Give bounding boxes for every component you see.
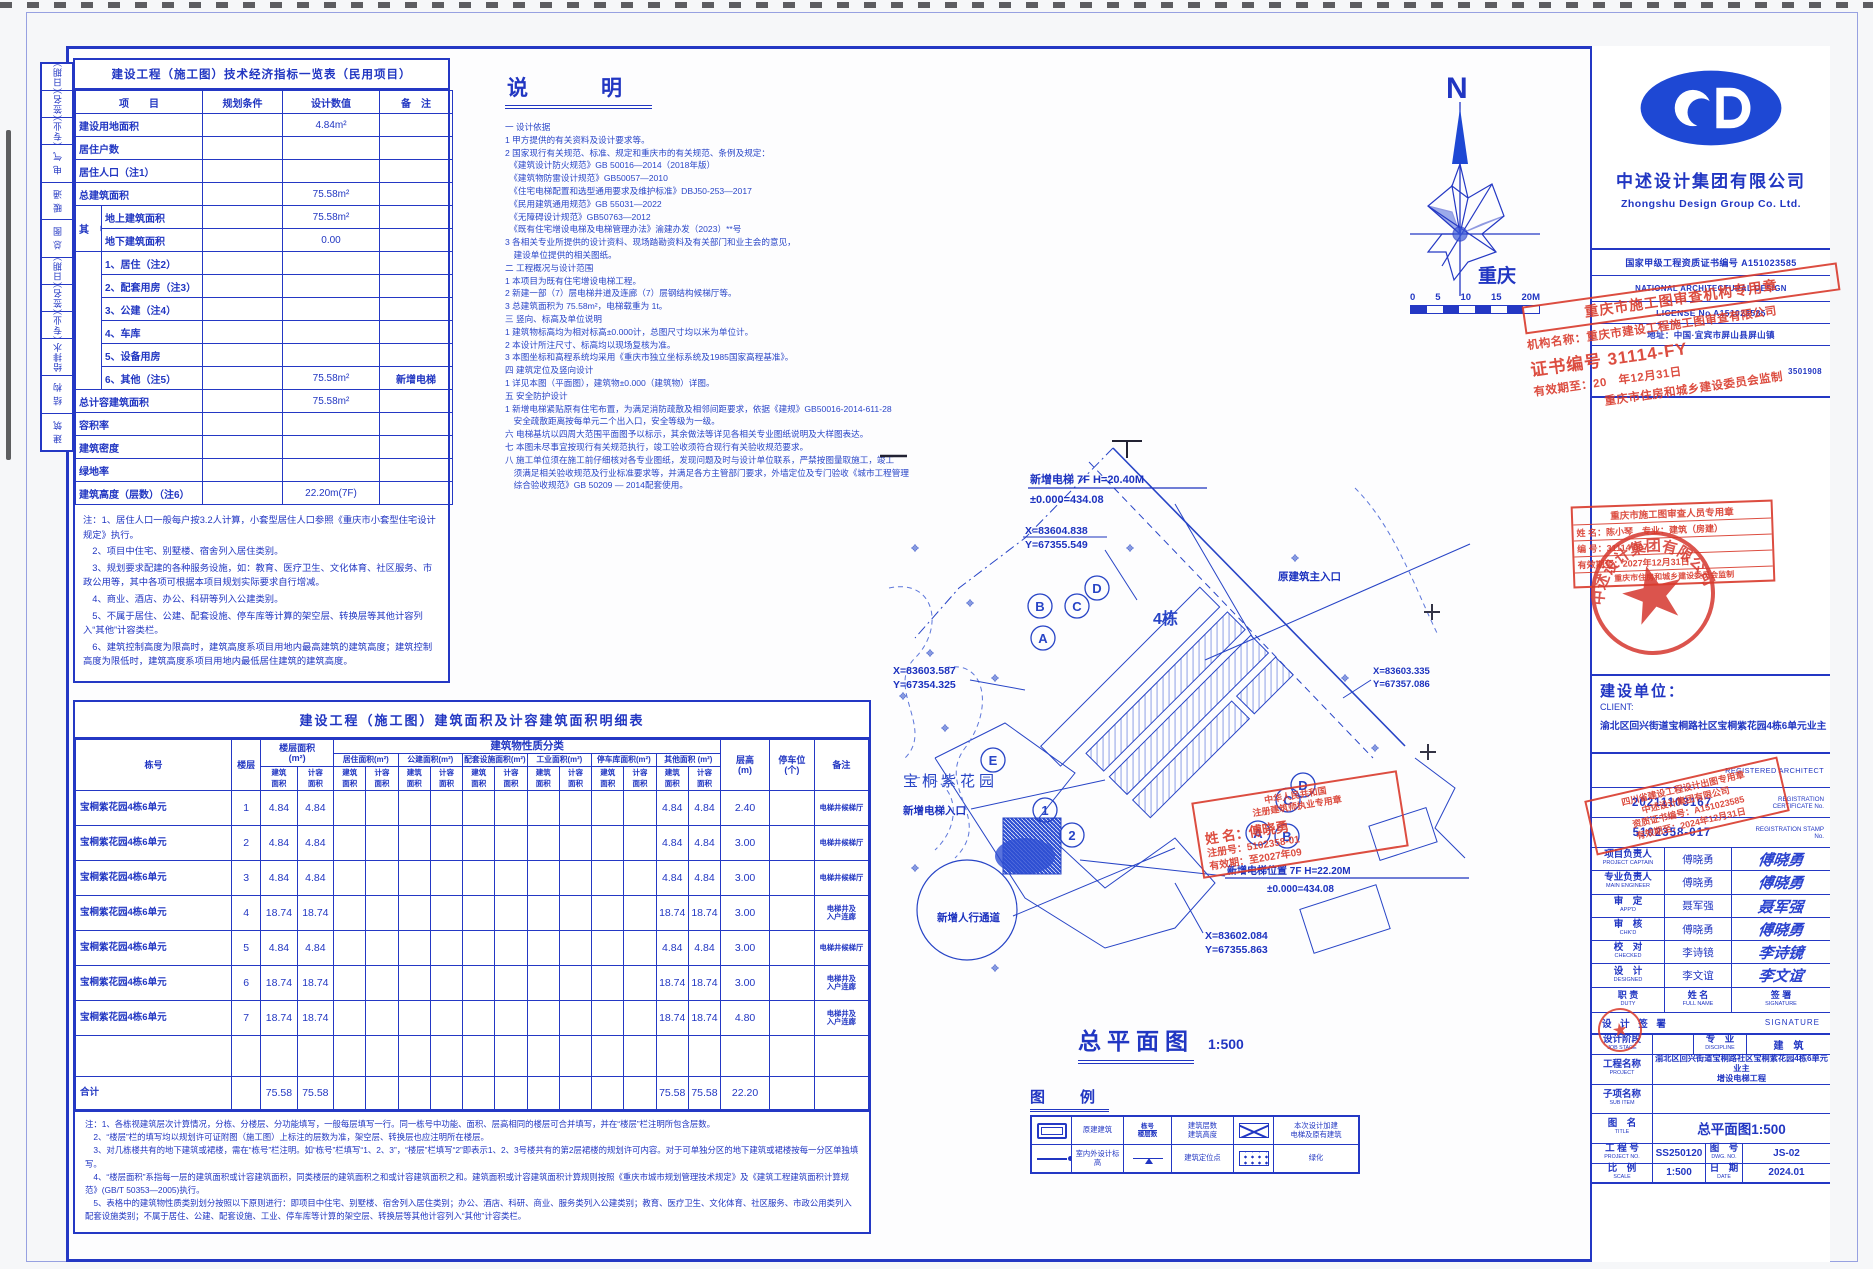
area-header-cell: 公建面积(m²): [398, 753, 463, 767]
area-cell: [430, 1077, 462, 1110]
indicator-cell: 新增电梯: [380, 367, 453, 390]
area-cell: [463, 1001, 495, 1036]
area-cell: [495, 931, 527, 966]
indicator-note-line: 注：1、居住人口一般每户按3.2人计算，小套型居住人口参照《重庆市小套型住宅设计…: [83, 513, 440, 542]
role-cn: 审 核: [1614, 920, 1643, 929]
coord-label: X=83602.084: [1205, 930, 1268, 942]
area-cell: 宝桐紫花园4栋6单元: [76, 791, 232, 826]
discipline-label-en: DISCIPLINE: [1705, 1044, 1734, 1053]
signoff-cell-label: 建 筑: [51, 420, 64, 444]
indicator-row: 其 中地上建筑面积75.58m²: [76, 206, 453, 229]
indicator-row: 总建筑面积75.58m²: [76, 183, 453, 206]
area-header-cell: 计容 面积: [430, 767, 462, 791]
area-cell: [398, 896, 430, 931]
indicator-cell: [380, 137, 453, 160]
area-note-line: 4、“楼层面积”系指每一层的建筑面积或计容建筑面积，同类楼层的建筑面积之和或计容…: [85, 1171, 859, 1197]
area-cell: 7: [232, 1001, 261, 1036]
indicator-note-line: 3、规划要求配建的各种服务设施，如：教育、医疗卫生、文化体育、社区服务、市政公用…: [83, 561, 440, 590]
duty-label: 职 责: [1592, 991, 1664, 1000]
signature-handwriting: 聂军强: [1730, 895, 1831, 917]
main-entrance-label: 原建筑主入口: [1278, 570, 1341, 583]
indicator-cell: [203, 482, 283, 505]
area-cell: 4.84: [656, 826, 688, 861]
signature-name: 傅晓勇: [1665, 848, 1732, 870]
indicator-cell: [203, 459, 283, 482]
area-header-cell: 建筑 面积: [656, 767, 688, 791]
indicator-cell: [380, 114, 453, 137]
indicator-cell: [283, 160, 380, 183]
subitem-row: 子项名称SUB ITEM: [1592, 1085, 1830, 1114]
role-cn: 校 对: [1614, 943, 1643, 952]
notes-line: 2 本设计所注尺寸、标高均以现场复核为准。: [505, 339, 913, 352]
area-note-line: 注：1、各栋视建筑层次计算情况，分栋、分楼层、分功能填写，一般每层填写一行。同一…: [85, 1118, 859, 1131]
area-cell: [559, 791, 591, 826]
circle-mark: D: [1092, 581, 1101, 596]
scale-tick-label: 10: [1460, 292, 1471, 303]
indicator-table: 项 目 规划条件 设计数值 备 注 建设用地面积4.84m²居住户数居住人口（注…: [75, 90, 453, 505]
area-cell: 5: [232, 931, 261, 966]
legend-cell: [1124, 1145, 1172, 1172]
company-block: 中述设计集团有限公司 Zhongshu Design Group Co. Ltd…: [1592, 46, 1830, 250]
legend-row: 室内外设计标高建筑定位点绿化: [1032, 1145, 1358, 1172]
signature-row: 项目负责人PROJECT CAPTAIN傅晓勇傅晓勇: [1592, 848, 1830, 871]
area-cell: 电梯井及 入户连廊: [814, 966, 868, 1001]
area-cell: 电梯井候梯厅: [814, 861, 868, 896]
area-cell: 18.74: [656, 966, 688, 1001]
indicator-note-line: 5、不属于居住、公建、配套设施、停车库等计算的架空层、转换层等其他计容列入“其他…: [83, 609, 440, 638]
role-en: APP'D: [1620, 906, 1636, 915]
subitem-value: [1653, 1085, 1830, 1113]
area-cell: [366, 1001, 398, 1036]
area-cell: [366, 791, 398, 826]
notes-line: 七 本图未尽事宜按现行有关规范执行，竣工验收须符合现行有关验收规范要求。: [505, 441, 913, 454]
scale-bar-graphic: [1410, 305, 1540, 314]
indicator-cell: 其 中: [76, 206, 102, 252]
indicator-row: 3、公建（注4）: [76, 298, 453, 321]
indicator-cell: 75.58m²: [283, 367, 380, 390]
area-cell: [430, 1001, 462, 1036]
legend-cell: 建筑层数 建筑高度: [1172, 1117, 1234, 1144]
area-cell: [624, 861, 656, 896]
coord-label: X=83604.838: [1025, 525, 1088, 537]
notes-line: 3 各相关专业所提供的设计资料、现场踏勘资料及有关部门和业主会的意见，: [505, 236, 913, 249]
indicator-row: 绿地率: [76, 459, 453, 482]
area-data-row: 宝桐紫花园4栋6单元14.844.844.844.842.40电梯井候梯厅: [76, 791, 869, 826]
notes-line: 3 总建筑面积为 75.58m²，电梯载重为 1t。: [505, 300, 913, 313]
notes-line: 2 新建一部（7）层电梯井道及连廊（7）层钢结构候梯厅等。: [505, 287, 913, 300]
signature-row: 审 定APP'D聂军强聂军强: [1592, 895, 1830, 918]
role-cn: 专业负责人: [1604, 873, 1652, 882]
scale-tick-label: 0: [1410, 292, 1415, 303]
area-cell: 22.20: [721, 1077, 770, 1110]
indicator-cell: 建设用地面积: [76, 114, 203, 137]
legend-cell: [1234, 1117, 1274, 1144]
area-cell: [624, 966, 656, 1001]
indicator-cell: [380, 183, 453, 206]
area-total-row: 合计75.5875.5875.5875.5822.20: [76, 1077, 869, 1110]
indicator-note-line: 2、项目中住宅、别墅楼、宿舍列入居住类别。: [83, 544, 440, 559]
area-cell: 4.84: [688, 861, 720, 896]
scale-value: 1:500: [1653, 1164, 1706, 1182]
company-logo-icon: [1631, 58, 1791, 158]
area-cell: 3: [232, 861, 261, 896]
area-cell: [559, 931, 591, 966]
indicator-cell: 容积率: [76, 413, 203, 436]
signoff-cell: 总 图: [42, 220, 72, 258]
area-cell: [527, 931, 559, 966]
area-cell: [366, 1036, 398, 1077]
signature-role: 校 对CHECKED: [1592, 941, 1665, 963]
role-en: MAIN ENGINEER: [1606, 882, 1650, 891]
area-cell: [559, 966, 591, 1001]
indicator-cell: 1、居住（注2）: [102, 252, 203, 275]
role-cn: 审 定: [1614, 897, 1643, 906]
scale-date-row: 比 例SCALE 1:500 日 期DATE 2024.01: [1592, 1164, 1830, 1184]
area-header-cell: 停车位 (个): [769, 740, 814, 791]
area-cell: [624, 1077, 656, 1110]
area-cell: [334, 861, 366, 896]
signoff-cell: 结 构: [42, 376, 72, 414]
area-header-cell: 建筑 面积: [398, 767, 430, 791]
indicator-cell: 建筑密度: [76, 436, 203, 459]
area-head: 栋号楼层楼层面积 (m²)建筑物性质分类层高 (m)停车位 (个)备注居住面积(…: [76, 740, 869, 791]
project-no-value: SS250120: [1653, 1144, 1706, 1163]
area-cell: 2.40: [721, 791, 770, 826]
legend-cell: [1234, 1145, 1274, 1172]
indicator-cell: 建筑高度（层数）（注6）: [76, 482, 203, 505]
area-cell: [463, 931, 495, 966]
area-cell: [334, 826, 366, 861]
area-cell: [559, 861, 591, 896]
signoff-cell: 建 筑: [42, 414, 72, 451]
indicator-cell: [203, 114, 283, 137]
indicator-row: 地下建筑面积0.00: [76, 229, 453, 252]
area-cell: 4.84: [261, 791, 297, 826]
discipline-label: 专 业: [1706, 1035, 1735, 1044]
area-cell: 18.74: [688, 896, 720, 931]
indicator-cell: [203, 321, 283, 344]
signature-name: 聂军强: [1665, 895, 1732, 917]
indicator-row: 容积率: [76, 413, 453, 436]
fullname-label: 姓 名: [1665, 991, 1731, 1000]
role-cn: 设 计: [1614, 967, 1643, 976]
elevation-symbol: [1037, 1158, 1067, 1160]
circle-mark: E: [989, 753, 998, 768]
area-cell: [366, 931, 398, 966]
area-cell: 2: [232, 826, 261, 861]
area-cell: [463, 896, 495, 931]
area-header-cell: 居住面积(m²): [334, 753, 399, 767]
coord-label: Y=67357.086: [1373, 679, 1430, 690]
indicator-cell: [380, 436, 453, 459]
area-data-row: 宝桐紫花园4栋6单元54.844.844.844.843.00电梯井候梯厅: [76, 931, 869, 966]
indicator-cell: [283, 321, 380, 344]
area-cell: [721, 1036, 770, 1077]
indicator-cell: [380, 413, 453, 436]
signature-handwriting: 李诗镜: [1730, 941, 1831, 963]
area-cell: [527, 826, 559, 861]
area-cell: [769, 896, 814, 931]
indicator-cell: 总计容建筑面积: [76, 390, 203, 413]
area-cell: 3.00: [721, 931, 770, 966]
area-cell: [366, 896, 398, 931]
indicator-cell: [380, 229, 453, 252]
date-value: 2024.01: [1743, 1164, 1830, 1182]
indicator-cell: 5、设备用房: [102, 344, 203, 367]
area-cell: [430, 966, 462, 1001]
area-cell: [430, 1036, 462, 1077]
area-cell: 18.74: [261, 966, 297, 1001]
signature-role: 审 定APP'D: [1592, 895, 1665, 917]
area-cell: 4.84: [261, 826, 297, 861]
signoff-cell: 给排水: [42, 339, 72, 377]
notes-line: 建设单位提供的相关图纸。: [505, 249, 913, 262]
area-table: 栋号楼层楼层面积 (m²)建筑物性质分类层高 (m)停车位 (个)备注居住面积(…: [75, 739, 869, 1110]
signoff-cell-label: 总 图: [51, 226, 64, 250]
area-cell: 1: [232, 791, 261, 826]
area-header-cell: 备注: [814, 740, 868, 791]
signoff-cell: （日期）: [42, 258, 72, 285]
area-cell: [769, 1077, 814, 1110]
indicator-cell: [283, 459, 380, 482]
area-cell: [559, 1001, 591, 1036]
area-cell: 电梯井候梯厅: [814, 931, 868, 966]
signoff-cell-label: 暖 通: [51, 189, 64, 213]
area-cell: [814, 1077, 868, 1110]
area-cell: [592, 896, 624, 931]
area-cell: 18.74: [261, 896, 297, 931]
signature-row: 设 计DESIGNED李文谊李文谊: [1592, 964, 1830, 987]
notes-line: 五 安全防护设计: [505, 390, 913, 403]
area-cell: 4.84: [297, 791, 333, 826]
discipline-value: 建 筑: [1747, 1035, 1830, 1054]
area-cell: 电梯井候梯厅: [814, 826, 868, 861]
area-cell: 电梯井及 入户连廊: [814, 1001, 868, 1036]
area-cell: 4: [232, 896, 261, 931]
area-cell: 4.84: [297, 931, 333, 966]
indicator-cell: 居住人口（注1）: [76, 160, 203, 183]
project-no-label-en: PROJECT NO.: [1604, 1153, 1640, 1162]
area-cell: [366, 966, 398, 1001]
indicator-cell: 绿地率: [76, 459, 203, 482]
coord-label: X=83603.587: [893, 665, 956, 677]
area-cell: [463, 966, 495, 1001]
area-cell: [688, 1036, 720, 1077]
indicator-cell: 2、配套用房（注3）: [102, 275, 203, 298]
legend-cell: 室内外设计标高: [1072, 1145, 1124, 1172]
site-plan-drawing: 新增电梯 7F H=20.40M ±0.000=434.08 X=83604.8…: [875, 428, 1475, 1028]
area-cell: 宝桐紫花园4栋6单元: [76, 966, 232, 1001]
signature-role: 审 核CHK'D: [1592, 918, 1665, 940]
area-cell: 4.84: [688, 826, 720, 861]
area-table-title: 建设工程（施工图）建筑面积及计容建筑面积明细表: [75, 702, 869, 739]
indicator-cell: [380, 390, 453, 413]
notes-line: 三 竖向、标高及单位说明: [505, 313, 913, 326]
cert-en-label: REGISTRATION STAMP No.: [1746, 826, 1824, 840]
area-cell: 3.00: [721, 966, 770, 1001]
notes-line: 四 建筑定位及竖向设计: [505, 364, 913, 377]
client-label-cn: 建设单位：: [1600, 683, 1685, 700]
area-cell: [430, 861, 462, 896]
notes-line: 六 电梯基坑以四周大范围平面图予以标示，其余做法等详见各相关专业图纸说明及大样图…: [505, 428, 913, 441]
area-cell: [592, 1036, 624, 1077]
coord-label: Y=67355.863: [1205, 944, 1268, 956]
duty-label-en: DUTY: [1592, 1000, 1664, 1009]
area-header-cell: 计容 面积: [559, 767, 591, 791]
indicator-note-line: 4、商业、酒店、办公、科研等列入公建类别。: [83, 592, 440, 607]
area-cell: [334, 896, 366, 931]
area-cell: [495, 791, 527, 826]
area-cell: 宝桐紫花园4栋6单元: [76, 931, 232, 966]
signoff-cell: （专业）: [42, 118, 72, 145]
area-cell: [559, 896, 591, 931]
project-label-en: PROJECT: [1610, 1069, 1635, 1078]
indicator-cell: [203, 367, 283, 390]
legend-cell: 原建建筑: [1072, 1117, 1124, 1144]
area-cell: 宝桐紫花园4栋6单元: [76, 861, 232, 896]
area-cell: [814, 1036, 868, 1077]
notes-line: 3 本图坐标和高程系统均采用《重庆市独立坐标系统及1985国家高程基准》。: [505, 351, 913, 364]
area-cell: [769, 1001, 814, 1036]
area-cell: 4.84: [688, 791, 720, 826]
indicator-note-line: 6、建筑控制高度为限高时，建筑高度系项目用地内最高建筑的建筑高度；建筑控制高度为…: [83, 640, 440, 669]
scale-tick-label: 5: [1435, 292, 1440, 303]
area-cell: 电梯井候梯厅: [814, 791, 868, 826]
indicator-cell: [380, 482, 453, 505]
indicator-cell: 75.58m²: [283, 183, 380, 206]
signoff-cell-label: 给排水: [51, 342, 64, 372]
notes-line: 2 国家现行有关规范、标准、规定和重庆市的有关规范、条例及规定：: [505, 147, 913, 160]
client-block: 建设单位： CLIENT: 渝北区回兴街道宝桐路社区宝桐紫花园4栋6单元业主: [1592, 676, 1830, 754]
area-header-cell: 停车库面积(m²): [592, 753, 657, 767]
city-label: 重庆: [1478, 264, 1516, 287]
project-value-line2: 增设电梯工程: [1717, 1074, 1766, 1084]
project-no-row: 工 程 号PROJECT NO. SS250120 图 号DWG. NO. JS…: [1592, 1144, 1830, 1164]
north-compass: N 重庆: [1408, 66, 1558, 326]
indicator-cell: [203, 206, 283, 229]
signature-rows: 项目负责人PROJECT CAPTAIN傅晓勇傅晓勇专业负责人MAIN ENGI…: [1592, 848, 1830, 988]
area-cell: 4.84: [261, 861, 297, 896]
signoff-cell-label: 电 气: [51, 151, 64, 175]
area-cell: [527, 966, 559, 1001]
indicator-cell: 地上建筑面积: [102, 206, 203, 229]
area-cell: [527, 1077, 559, 1110]
drawing-title-value: 总平面图1:500: [1653, 1114, 1830, 1143]
indicator-row: 5、设备用房: [76, 344, 453, 367]
indicator-cell: [283, 137, 380, 160]
notes-line: 《既有住宅增设电梯及电梯管理办法》渝建办发（2023）**号: [505, 223, 913, 236]
scale-labels: 05101520M: [1410, 292, 1540, 303]
scan-tick-strip: [0, 2, 1873, 8]
area-header-cell: 建筑 面积: [261, 767, 297, 791]
drawing-title-row: 图 名TITLE 总平面图1:500: [1592, 1114, 1830, 1144]
area-cell: [398, 1001, 430, 1036]
area-cell: [624, 826, 656, 861]
signature-handwriting: 傅晓勇: [1730, 871, 1831, 893]
new-elevator-top-label: 新增电梯 7F H=20.40M: [1030, 472, 1144, 486]
area-cell: [430, 791, 462, 826]
area-cell: 4.84: [656, 791, 688, 826]
indicator-cell: [283, 413, 380, 436]
area-note-line: 5、表格中的建筑物性质类别划分按照以下原则进行：即项目中住宅、别墅楼、宿舍列入居…: [85, 1197, 859, 1223]
signoff-cell: （日期）: [42, 64, 72, 91]
legend-cell: [1032, 1145, 1072, 1172]
area-cell: [261, 1036, 297, 1077]
indicator-cell: [203, 252, 283, 275]
area-cell: [430, 896, 462, 931]
circle-mark: C: [1072, 599, 1082, 614]
area-header-cell: 栋号: [76, 740, 232, 791]
signoff-cell-label: （签名）: [51, 285, 64, 312]
signoff-cell: （签名）: [42, 285, 72, 312]
area-cell: [334, 1077, 366, 1110]
project-no-label: 工 程 号: [1605, 1144, 1639, 1153]
north-arrow-icon: [1452, 108, 1468, 164]
area-body: 宝桐紫花园4栋6单元14.844.844.844.842.40电梯井候梯厅宝桐紫…: [76, 791, 869, 1110]
indicator-row: 居住户数: [76, 137, 453, 160]
plan-title-scale: 1:500: [1208, 1036, 1244, 1052]
north-label: N: [1446, 72, 1468, 105]
legend-cell: 本次设计加建 电梯及原有建筑: [1274, 1117, 1358, 1144]
signature-row: 审 核CHK'D傅晓勇傅晓勇: [1592, 918, 1830, 941]
area-cell: [527, 861, 559, 896]
area-cell: 宝桐紫花园4栋6单元: [76, 826, 232, 861]
indicator-cell: [283, 252, 380, 275]
dwg-no-label-en: DWG. NO.: [1711, 1153, 1736, 1162]
area-cell: [624, 1036, 656, 1077]
col-header: 设计数值: [283, 91, 380, 114]
area-cell: 4.84: [297, 861, 333, 896]
scale-label: 比 例: [1608, 1164, 1637, 1173]
area-note-line: 2、“楼层”栏的填写均以规划许可证附图（施工图）上标注的层数为准，架空层、转换层…: [85, 1131, 859, 1144]
plan-title: 总平面图 1:500: [1078, 1022, 1244, 1064]
indicator-cell: [203, 344, 283, 367]
area-cell: [398, 826, 430, 861]
area-cell: [463, 1036, 495, 1077]
notes-line: 二 工程概况与设计范围: [505, 262, 913, 275]
indicator-cell: [203, 390, 283, 413]
area-cell: [495, 861, 527, 896]
wind-rose-icon: [1428, 164, 1504, 280]
indicator-cell: [203, 229, 283, 252]
indicator-cell: [380, 275, 453, 298]
area-cell: [592, 966, 624, 1001]
area-cell: 4.84: [261, 931, 297, 966]
area-cell: [769, 931, 814, 966]
indicator-cell: [76, 252, 102, 390]
indicator-cell: 75.58m²: [283, 206, 380, 229]
indicator-row: 6、其他（注5）75.58m²新增电梯: [76, 367, 453, 390]
indicator-cell: 3、公建（注4）: [102, 298, 203, 321]
indicator-cell: [380, 206, 453, 229]
area-cell: [297, 1036, 333, 1077]
drawing-title-label: 图 名: [1608, 1119, 1637, 1128]
area-header-cell: 建筑 面积: [334, 767, 366, 791]
area-cell: [398, 966, 430, 1001]
area-cell: 4.84: [688, 931, 720, 966]
area-header-cell: 建筑 面积: [463, 767, 495, 791]
area-cell: [334, 966, 366, 1001]
signoff-cell-label: （专业）: [51, 118, 64, 145]
role-en: DESIGNED: [1614, 976, 1643, 985]
existing-building-symbol: [1037, 1123, 1067, 1139]
notes-line: 一 设计依据: [505, 121, 913, 134]
area-cell: [769, 966, 814, 1001]
scan-left-bar: [6, 130, 11, 460]
area-cell: [527, 1036, 559, 1077]
area-cell: [430, 931, 462, 966]
signature-row: 专业负责人MAIN ENGINEER傅晓勇傅晓勇: [1592, 871, 1830, 894]
